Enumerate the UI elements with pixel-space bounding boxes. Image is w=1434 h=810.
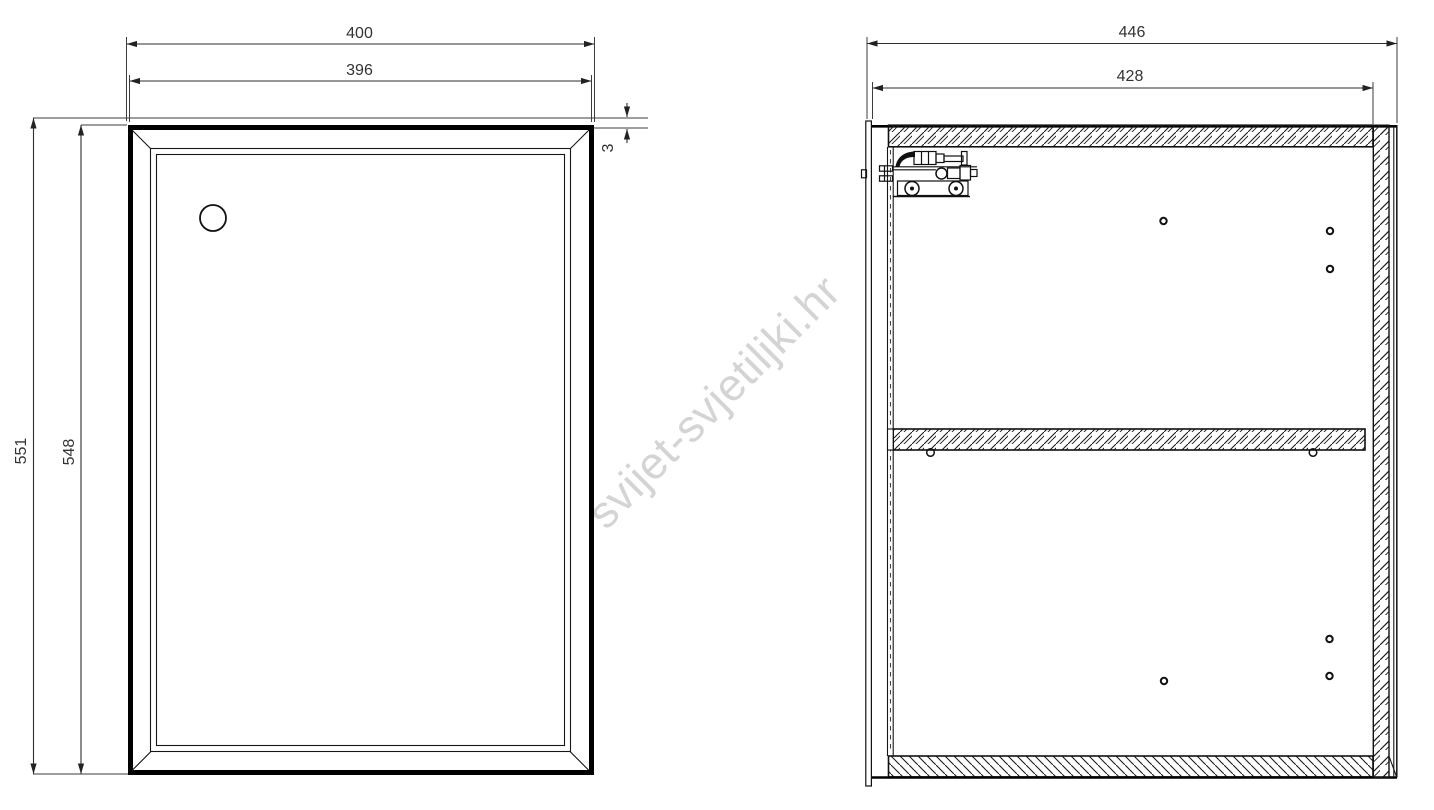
door-panel [131,128,592,773]
top-panel-section [889,125,1374,147]
drawing-sheet: 400 396 551 548 3 [0,0,1434,810]
system-holes [1160,218,1333,684]
hole [1161,678,1167,684]
dim-interior-depth-value: 428 [1117,68,1144,85]
shelf-front-edge [888,429,894,450]
hole [1327,228,1333,234]
dim-top-gap-value: 3 [600,143,617,152]
cabinet-section [866,121,1397,786]
dim-door-height-value: 548 [61,439,78,466]
hole [1326,673,1332,679]
hinge-arm [896,152,916,168]
dim-overall-depth: 446 [867,24,1397,44]
hole [1326,636,1332,642]
dim-interior-depth: 428 [873,68,1374,88]
dim-door-width: 396 [130,62,592,81]
hinge-hardware [862,152,978,197]
door-outer-edge [131,128,592,773]
hole [1160,218,1166,224]
bottom-panel-section [889,756,1374,777]
hinge-screw [936,168,947,179]
dim-door-height: 548 [61,125,81,774]
door-edge-profile [866,121,872,786]
front-view: 400 396 551 548 3 [13,25,648,774]
dim-overall-height: 551 [13,118,34,774]
dim-overall-height-value: 551 [13,438,30,465]
dim-overall-width-value: 400 [346,25,373,42]
dim-door-width-value: 396 [346,62,373,79]
side-view: 446 428 [862,24,1398,786]
hinge-cup-hole [200,205,226,231]
back-panel-section [1373,125,1389,777]
dim-overall-width: 400 [127,25,595,44]
hole [1327,266,1333,272]
shelf-section [893,429,1365,450]
dim-overall-depth-value: 446 [1119,24,1146,41]
